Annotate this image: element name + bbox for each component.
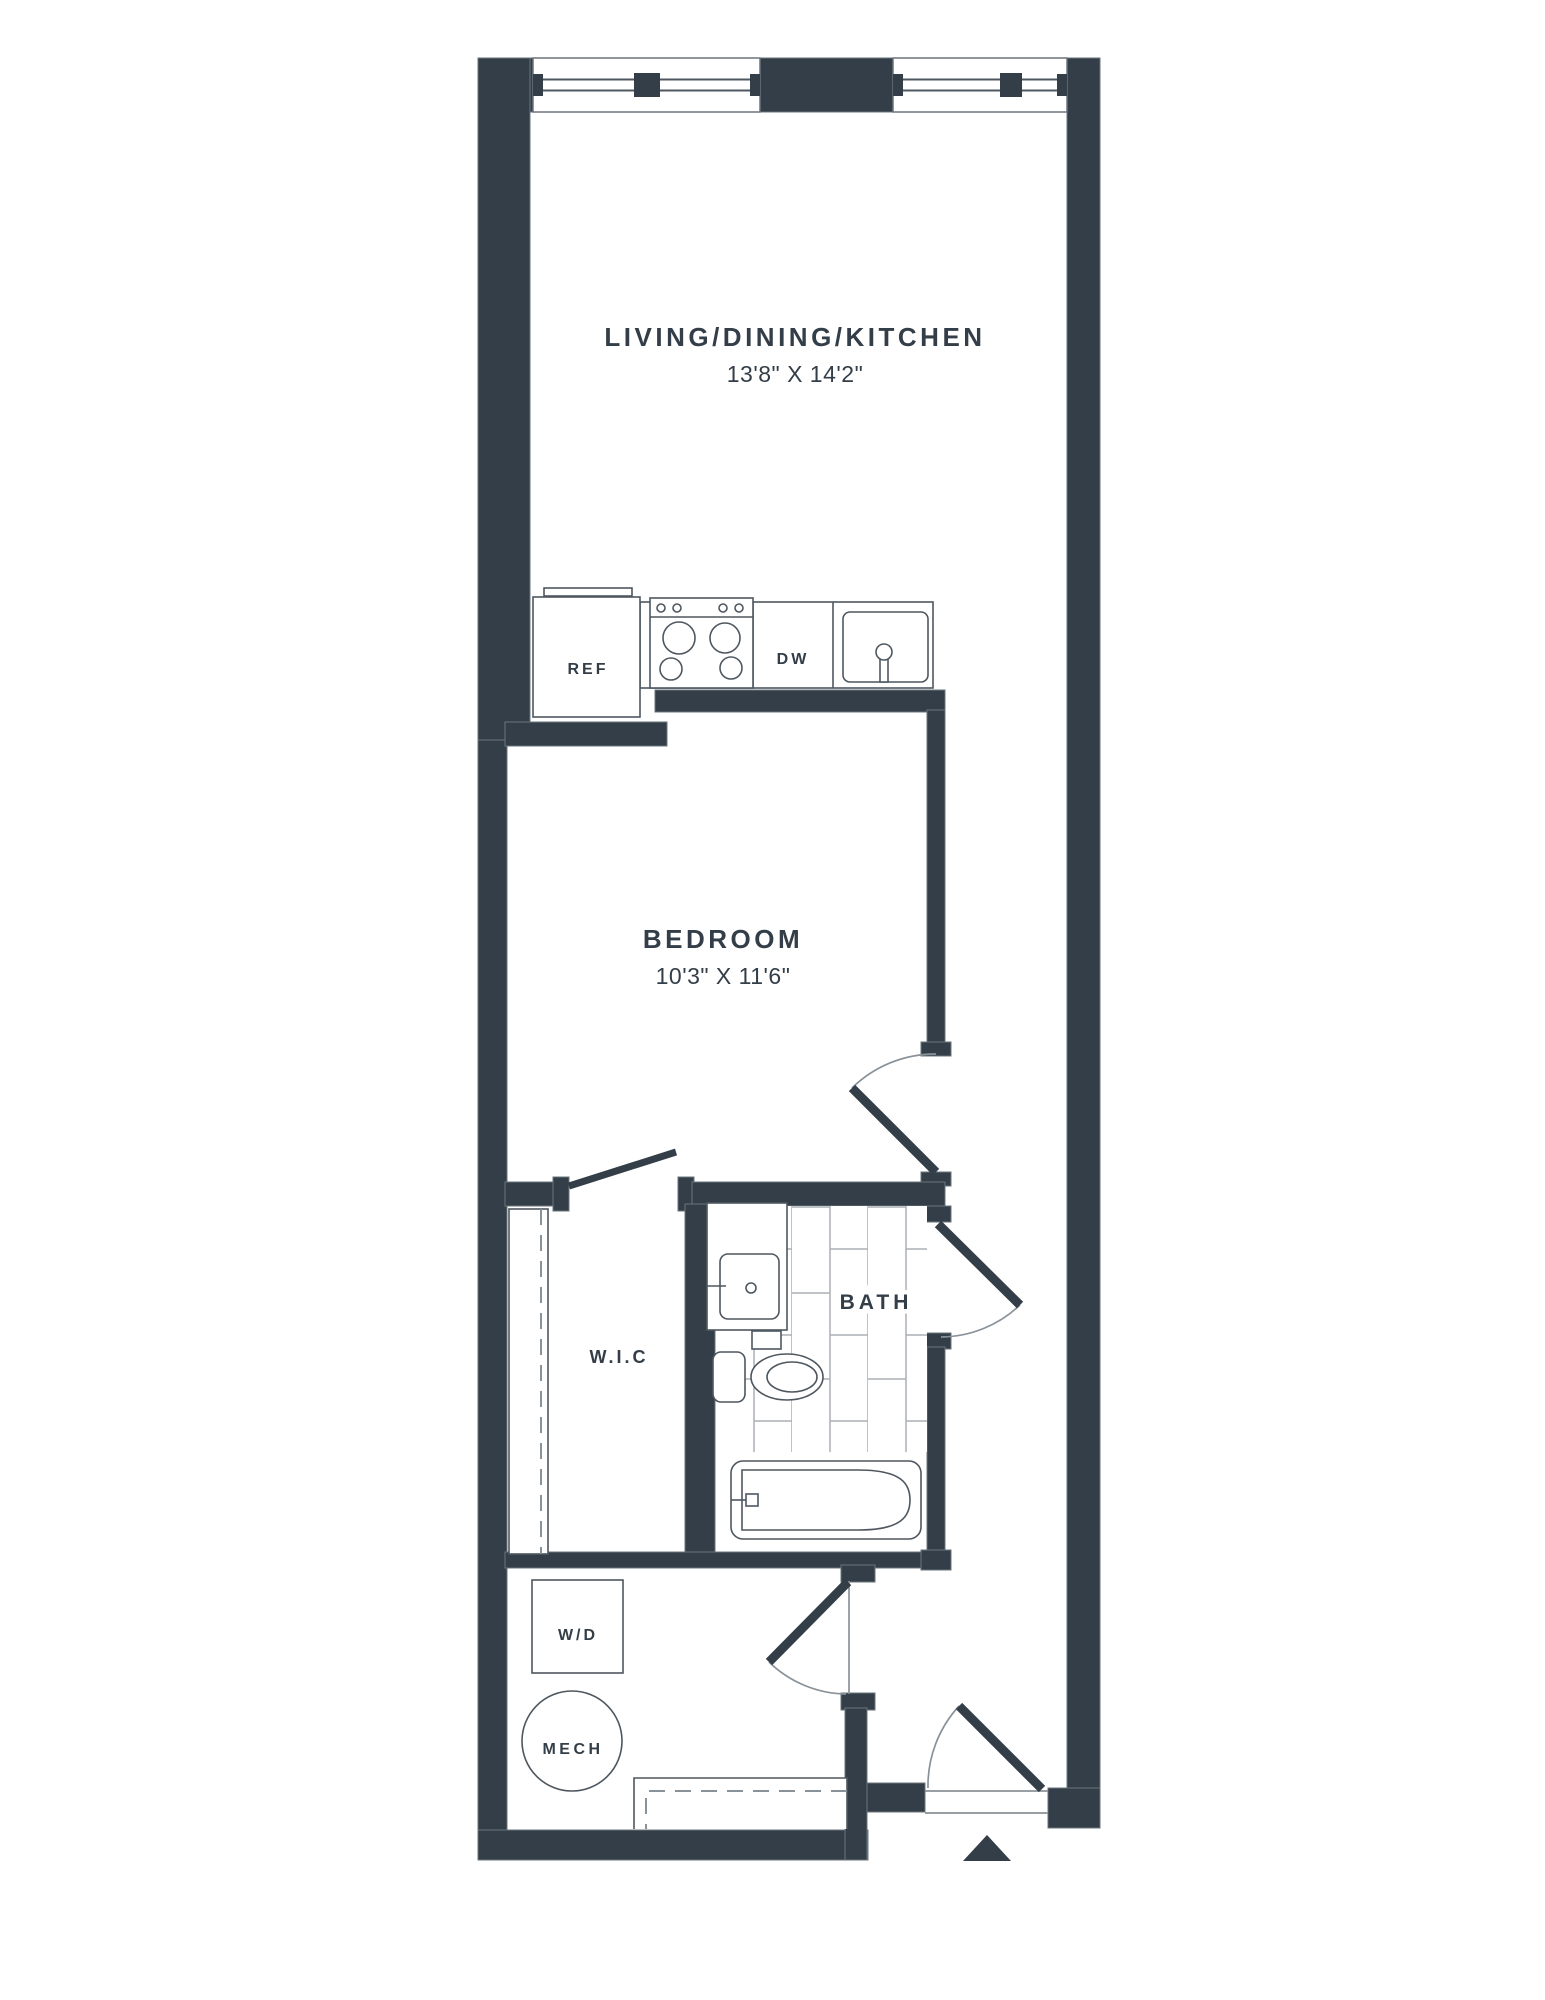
window-end-block [750, 74, 760, 96]
window-right [893, 58, 1067, 112]
kitchen-sink [843, 612, 928, 682]
entry-arrow-icon [963, 1835, 1011, 1861]
door-swing-arc [941, 1305, 1020, 1337]
laundry-door [769, 1581, 849, 1694]
toilet-bowl-inner [767, 1362, 817, 1392]
bath-door [938, 1224, 1020, 1337]
floorplan-svg: LIVING/DINING/KITCHEN 13'8" X 14'2" BEDR… [0, 0, 1545, 2000]
window-frame [893, 58, 1067, 112]
stove-knob [735, 604, 743, 612]
wall-right [1067, 58, 1100, 1828]
tub-faucet [746, 1494, 758, 1506]
door-swing-arc [928, 1706, 959, 1788]
wall-kitchen-step [505, 722, 667, 746]
entry-threshold-lines [925, 1791, 1048, 1813]
entry-bench [634, 1778, 847, 1829]
bath-label: BATH [840, 1291, 913, 1314]
bedroom-door [852, 1054, 936, 1172]
closet-shelf [509, 1209, 548, 1554]
toilet [713, 1352, 823, 1402]
door-swing-arc [852, 1054, 936, 1088]
wall-bottom-right-corner [1048, 1788, 1100, 1828]
refrigerator-handle [544, 588, 632, 596]
door-swing-arc [769, 1662, 846, 1694]
jamb-wic-door-left [553, 1177, 569, 1211]
stove-knob [719, 604, 727, 612]
floorplan-canvas: LIVING/DINING/KITCHEN 13'8" X 14'2" BEDR… [0, 0, 1545, 2000]
wall-bedroom-right [927, 710, 945, 1044]
window-mullion [634, 73, 660, 97]
wic-label: W.I.C [590, 1347, 649, 1367]
window-end-block [533, 74, 543, 96]
bath-fixtures [707, 1203, 927, 1539]
burner [720, 657, 742, 679]
jamb-bath-bottom-stub [921, 1550, 951, 1570]
jamb-laundry-door-top [841, 1565, 875, 1582]
wall-left-upper [478, 58, 530, 746]
burner [663, 622, 695, 654]
living-room-label: LIVING/DINING/KITCHEN [604, 322, 985, 352]
wall-laundry-right [845, 1708, 867, 1860]
wall-bath-right [927, 1347, 945, 1555]
door-leaf [569, 1152, 676, 1186]
mechanical-label: MECH [542, 1741, 603, 1758]
stove-knob [673, 604, 681, 612]
wic-door [569, 1152, 676, 1186]
jamb-laundry-door-bottom [841, 1693, 875, 1710]
dishwasher-label: DW [777, 651, 810, 668]
window-left [533, 58, 760, 112]
bath-shelf-box [752, 1331, 781, 1349]
sink-faucet [876, 644, 892, 660]
wall-entry-left [867, 1783, 925, 1812]
wall-top-pier [760, 58, 893, 112]
bedroom-dimensions: 10'3" X 11'6" [656, 963, 791, 989]
door-leaf [938, 1224, 1020, 1305]
stove [650, 598, 753, 688]
refrigerator [533, 597, 640, 717]
door-leaf [959, 1706, 1042, 1789]
bedroom-label: BEDROOM [643, 924, 803, 954]
entry-door [925, 1706, 1048, 1861]
window-end-block [1057, 74, 1067, 96]
wic-fixtures [509, 1209, 548, 1554]
toilet-tank [713, 1352, 745, 1402]
burner [710, 623, 740, 653]
washer-dryer-label: W/D [558, 1627, 598, 1644]
bath-sink-drain [746, 1283, 756, 1293]
tub-basin [742, 1470, 910, 1530]
window-mullion [1000, 73, 1022, 97]
stove-knob [657, 604, 665, 612]
window-end-block [893, 74, 903, 96]
wall-kitchen-bedroom [655, 690, 945, 712]
burner [660, 658, 682, 680]
door-leaf [852, 1088, 936, 1172]
bathtub [731, 1461, 921, 1539]
living-room-dimensions: 13'8" X 14'2" [727, 361, 863, 387]
labels: LIVING/DINING/KITCHEN 13'8" X 14'2" BEDR… [542, 322, 985, 1758]
refrigerator-label: REF [568, 661, 609, 678]
wall-left-lower [478, 740, 507, 1860]
laundry-fixtures [522, 1580, 847, 1829]
wall-bottom [478, 1830, 868, 1860]
wall-wic-top [505, 1182, 555, 1206]
wall-wic-bath-bottom [505, 1552, 945, 1568]
door-leaf [769, 1582, 848, 1662]
